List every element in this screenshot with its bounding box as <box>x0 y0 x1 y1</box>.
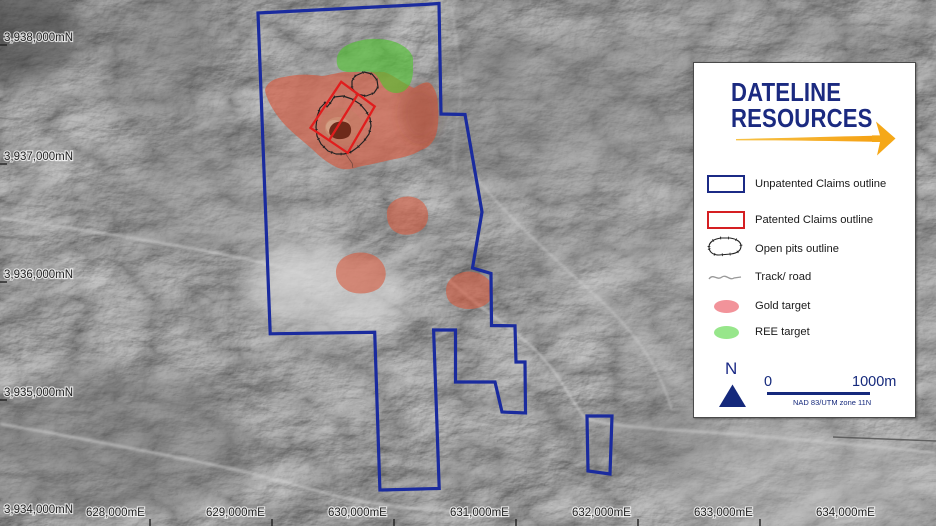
svg-text:3,937,000mN: 3,937,000mN <box>4 151 73 163</box>
svg-text:634,000mE: 634,000mE <box>816 507 875 519</box>
svg-text:633,000mE: 633,000mE <box>694 507 753 519</box>
svg-text:629,000mE: 629,000mE <box>206 507 265 519</box>
svg-text:630,000mE: 630,000mE <box>328 507 387 519</box>
svg-text:3,936,000mN: 3,936,000mN <box>4 269 73 281</box>
svg-text:3,938,000mN: 3,938,000mN <box>4 32 73 44</box>
svg-text:632,000mE: 632,000mE <box>572 507 631 519</box>
svg-text:631,000mE: 631,000mE <box>450 507 509 519</box>
svg-text:3,934,000mN: 3,934,000mN <box>4 504 73 516</box>
svg-text:628,000mE: 628,000mE <box>86 507 145 519</box>
svg-text:3,935,000mN: 3,935,000mN <box>4 387 73 399</box>
